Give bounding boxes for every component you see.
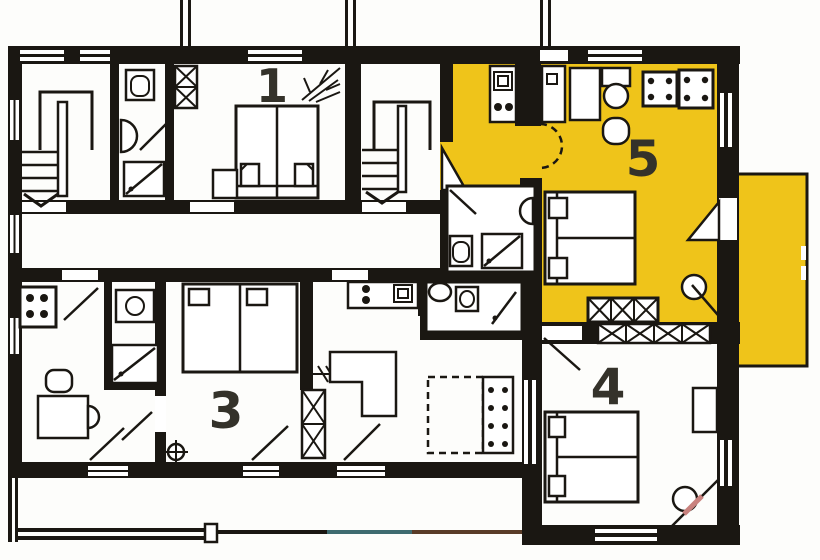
toilet-icon (456, 287, 478, 311)
bathroom-corridor (426, 282, 522, 332)
door-swing (252, 426, 288, 460)
wardrobe-icon (588, 298, 658, 322)
cabinet-icon (570, 68, 600, 120)
door-swing (344, 424, 380, 460)
dining-table-icon (679, 70, 713, 108)
floor-plan: 1 (0, 0, 820, 560)
room-3-label: 3 (209, 382, 244, 440)
door-swing (140, 124, 166, 150)
plant-icon (302, 68, 340, 102)
fridge-icon (542, 66, 565, 122)
bathroom-west (121, 70, 166, 196)
nightstand-icon (693, 388, 717, 432)
shower-icon (124, 162, 164, 196)
dining-table-icon (643, 72, 677, 106)
wardrobe-icon (598, 324, 710, 343)
desk-icon (38, 396, 99, 438)
double-bed-icon (545, 412, 638, 502)
stairwell-west (22, 92, 92, 206)
stair-steps-icon (22, 152, 58, 191)
balcony-railing (18, 528, 208, 532)
door-swing (64, 288, 98, 320)
shower-icon (112, 345, 158, 383)
floor-plan-page: 1 (0, 0, 820, 560)
stairwell-center (362, 102, 430, 203)
south-balcony (8, 478, 522, 542)
kitchen-counter-icon (490, 66, 516, 122)
bathroom-apartment-5 (447, 186, 535, 272)
counter-icon (330, 352, 396, 416)
sofa-bed-outline (428, 377, 483, 453)
sink-icon (429, 283, 451, 301)
double-bed-icon (236, 106, 318, 198)
apartment-4: 4 (544, 324, 718, 526)
room-1-label: 1 (256, 59, 288, 113)
apartment-5-balcony (733, 174, 807, 366)
washing-machine-icon (116, 290, 154, 322)
door-swing (122, 412, 152, 440)
sink-icon (121, 120, 137, 152)
room-4-label: 4 (591, 358, 626, 416)
wardrobe-icon (302, 390, 325, 458)
chair-icon (46, 370, 72, 392)
wardrobe-icon (175, 66, 197, 108)
bench-table-icon (483, 377, 513, 453)
terrace-railing-stubs (180, 0, 551, 50)
double-bed-icon (183, 284, 297, 372)
room-5-label: 5 (626, 130, 661, 188)
shower-icon (482, 234, 522, 268)
room-1: 1 (213, 59, 340, 198)
door-swing (90, 428, 124, 460)
ceiling-light-icon (164, 440, 188, 464)
bench-icon (213, 170, 237, 198)
toilet-icon (450, 236, 472, 266)
double-bed-icon (545, 192, 635, 284)
stove-icon (20, 287, 56, 327)
kitchenette-icon (348, 282, 418, 308)
stair-steps-icon (362, 150, 398, 189)
